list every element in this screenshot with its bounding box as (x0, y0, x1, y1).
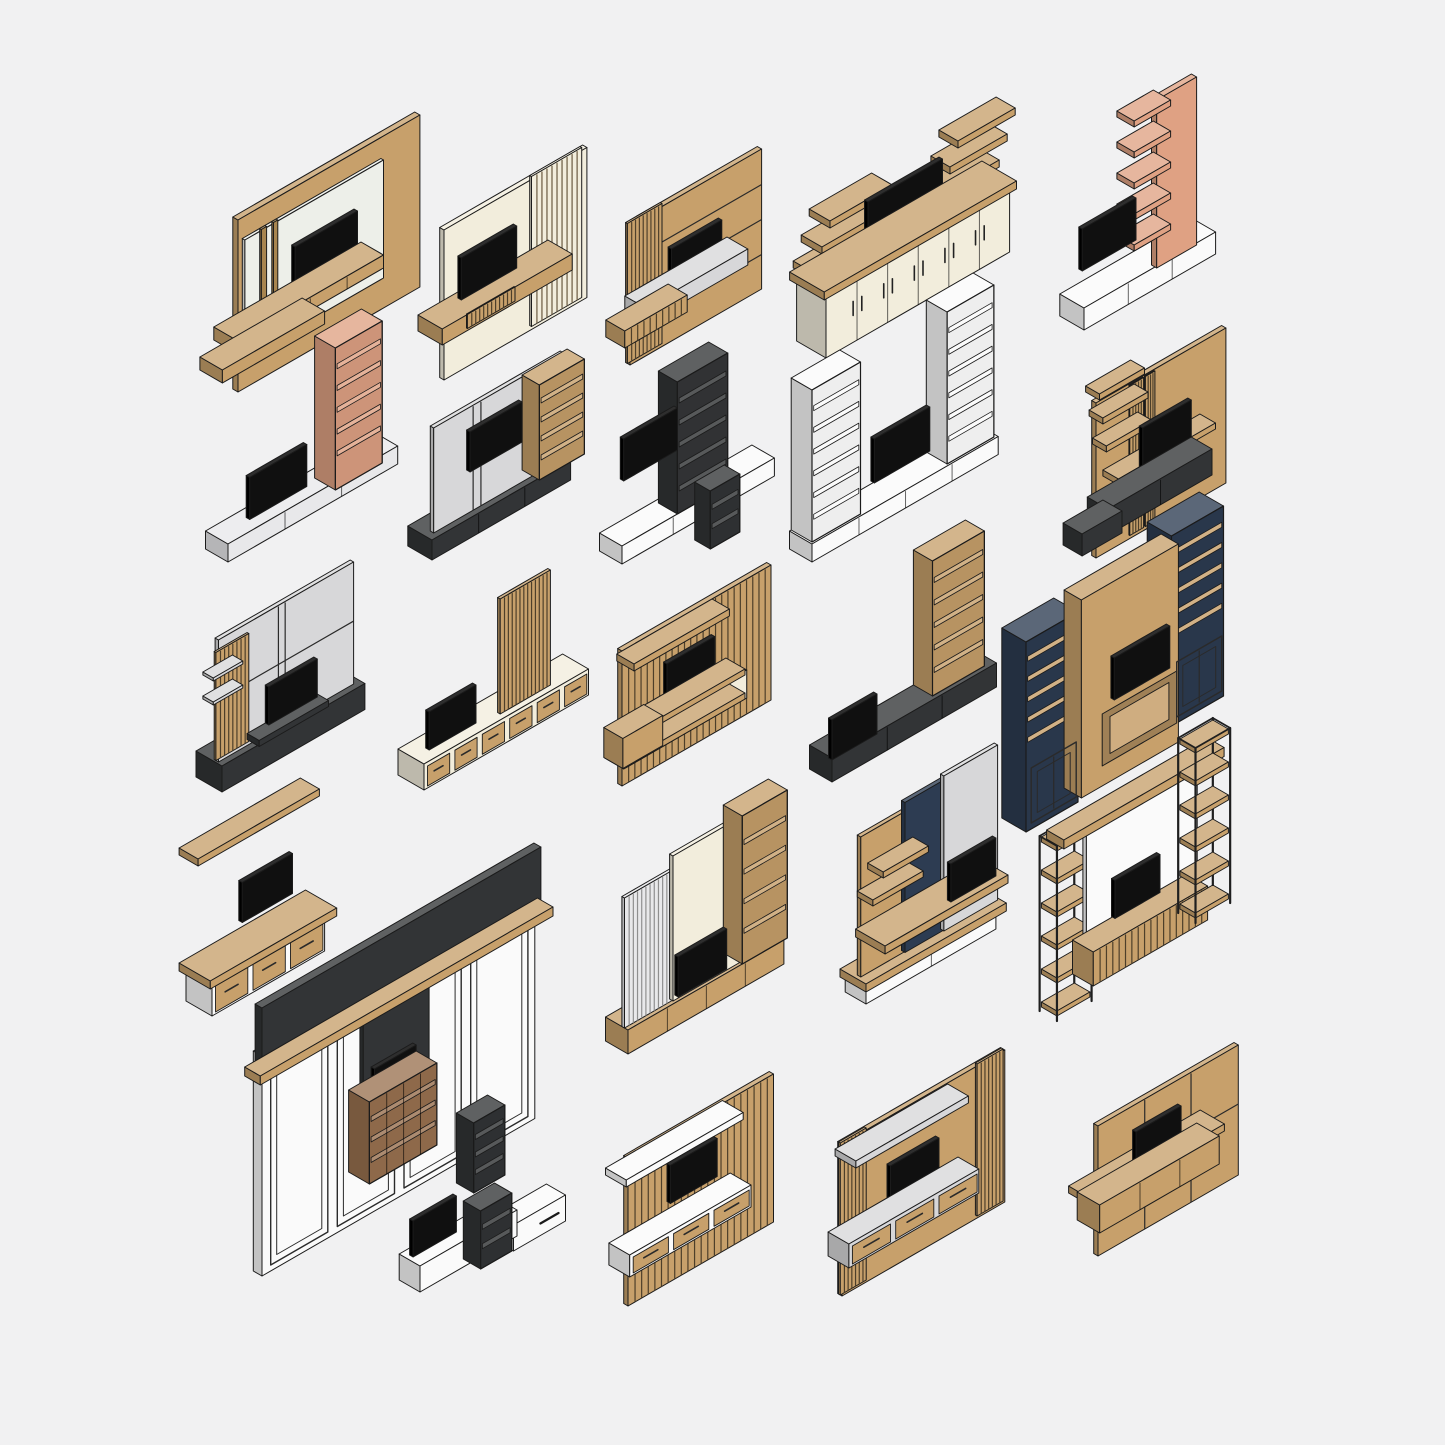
unit-24-wood-grid-panel (1069, 1043, 1239, 1257)
open-shelf-unit (315, 309, 383, 490)
open-shelf-unit (791, 350, 860, 542)
furniture-part (622, 868, 675, 1029)
furniture-part (179, 778, 319, 866)
open-shelf-unit (913, 520, 984, 696)
unit-08-charcoal-vitrine (600, 342, 775, 564)
unit-03-wood-panel-left-slats (606, 147, 762, 366)
catalog-svg (0, 0, 1445, 1445)
furniture-part (530, 147, 582, 327)
unit-12-slat-screen-drawer-console (398, 569, 589, 791)
open-shelf-unit (926, 273, 994, 464)
unit-02-cream-slat-panel (418, 145, 587, 380)
furniture-part (1041, 983, 1090, 1016)
open-shelf-unit (463, 1183, 512, 1269)
unit-11-window-panel-dark-base (196, 560, 365, 792)
unit-19-color-block-panel (840, 743, 1008, 1004)
open-shelf-unit (695, 465, 740, 549)
unit-14-wood-vitrine-black-console (810, 520, 997, 782)
furniture-part (975, 1048, 1003, 1216)
open-shelf-unit (456, 1095, 505, 1193)
unit-13-full-slat-wall (604, 563, 771, 787)
unit-18-tri-panel-shelf-tower (606, 779, 788, 1054)
unit-05-copper-shelf-tower-console (1060, 74, 1216, 330)
unit-01-framed-wood-media-panel (200, 112, 420, 392)
unit-22-slat-wall-white-console (606, 1072, 774, 1307)
unit-07-glass-panel-dark-console (408, 349, 585, 560)
open-shelf-unit (723, 779, 787, 964)
unit-23-slat-frame-gray-console (828, 1048, 1005, 1297)
furniture-catalog-canvas (0, 0, 1445, 1445)
